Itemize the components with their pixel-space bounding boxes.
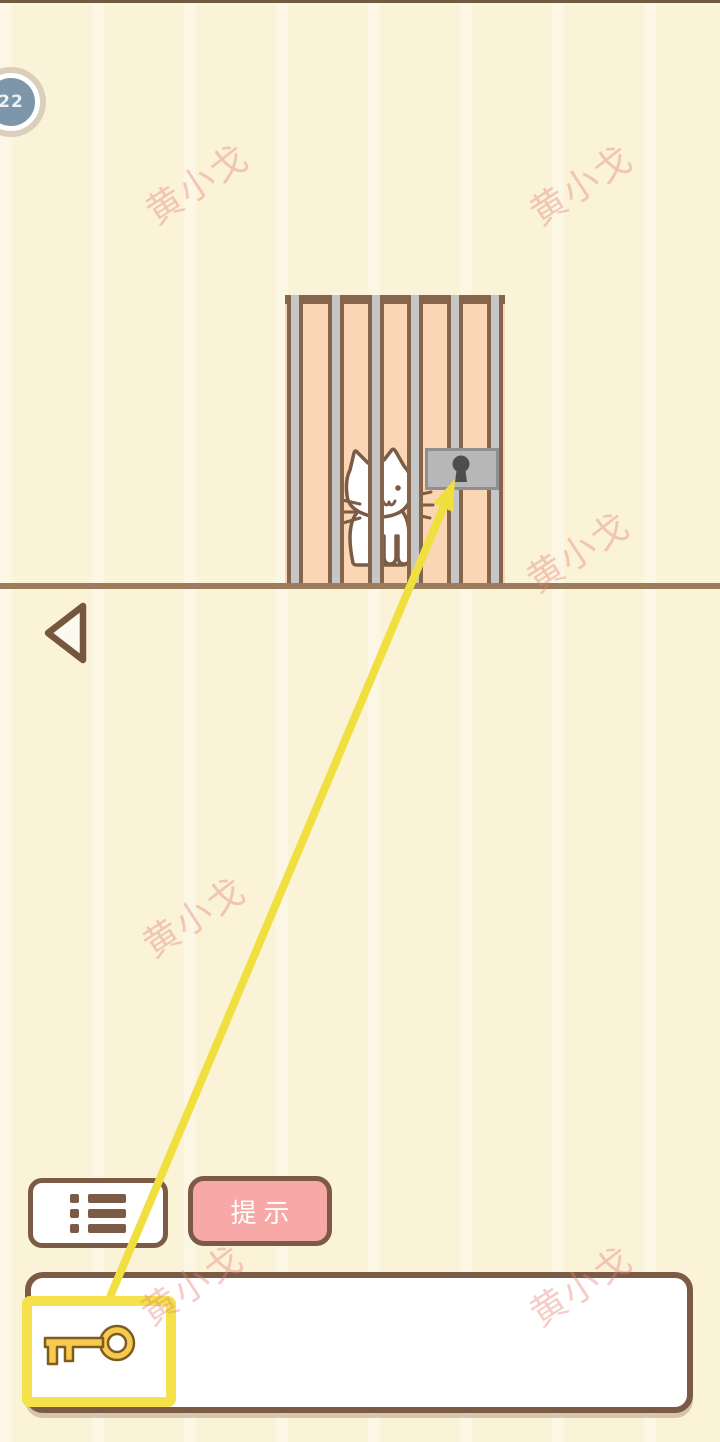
cage-bar (328, 295, 344, 584)
cage-bar (447, 295, 463, 584)
game-screen: 22 黄小戈 黄小戈 黄小戈 黄小戈 黄小戈 黄小戈 (0, 0, 720, 1442)
cage-top-frame (285, 295, 505, 304)
back-triangle-icon (42, 601, 92, 667)
padlock[interactable] (425, 448, 499, 490)
level-badge-text: 22 (0, 92, 24, 112)
cage (285, 295, 505, 584)
watermark: 黄小戈 (511, 126, 648, 240)
level-badge: 22 (0, 73, 40, 131)
cage-bar (407, 295, 423, 584)
cage-bar (368, 295, 384, 584)
ground-line (0, 583, 720, 589)
watermark: 黄小戈 (127, 125, 264, 239)
key-icon[interactable] (42, 1322, 138, 1368)
back-button[interactable] (42, 601, 92, 667)
list-icon (70, 1188, 126, 1239)
hint-button-label: 提示 (223, 1193, 296, 1230)
cage-bar (487, 295, 503, 584)
top-border-line (0, 0, 720, 3)
watermark: 黄小戈 (124, 858, 261, 972)
menu-button[interactable] (28, 1178, 168, 1248)
keyhole-icon (428, 451, 496, 487)
cage-bar (287, 295, 303, 584)
watermark: 黄小戈 (508, 493, 645, 607)
hint-button[interactable]: 提示 (188, 1176, 332, 1246)
